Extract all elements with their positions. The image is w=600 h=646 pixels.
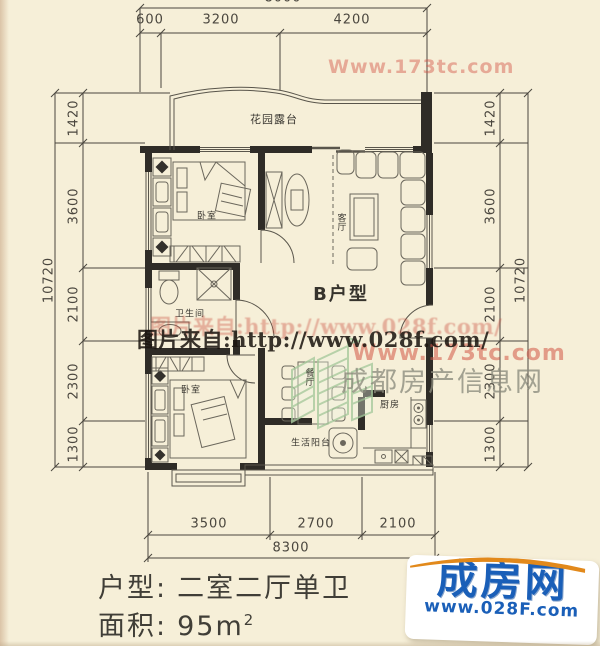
dim-right-1420: 1420 [484,99,499,136]
room-label-bedroom-upper: 卧室 [197,209,217,222]
walls [140,92,433,470]
area-sup: 2 [244,611,255,629]
closet-upper-bedroom [153,158,171,256]
door-bedroom-upper [261,230,294,263]
washer [329,428,357,458]
wardrobe-hatch-upper [170,246,240,262]
floorplan-scan: 8000 600 3200 4200 10720 1420 3600 2100 … [0,0,600,646]
area-value: 95m [177,611,244,642]
wardrobe-hatch-lower [152,357,204,371]
unit-type-line: 户型:二室二厅单卫 [98,566,351,605]
dim-top-total: 8000 [264,0,301,6]
dim-left-2100: 2100 [67,285,82,322]
dim-top-4200: 4200 [333,13,370,28]
closet-lower-bedroom [152,368,168,462]
dim-bottom-2100: 2100 [379,517,416,532]
tv-unit [266,172,309,228]
dim-right-1300: 1300 [484,425,499,462]
dim-top-3200: 3200 [202,13,239,28]
site-logo-url: www.028F.com [424,596,580,621]
watermark-site-top: Www.173tc.com [328,56,514,78]
type-value: 二室二厅单卫 [177,573,351,604]
dim-left-total: 10720 [42,257,57,303]
dim-top-600: 600 [136,13,164,28]
room-label-kitchen: 厨房 [380,398,400,411]
type-label: 户型: [98,573,167,604]
area-label: 面积: [98,611,167,642]
site-logo: 成房网 www.028F.com [405,555,600,646]
dim-right-total: 10720 [514,257,529,303]
room-label-living-room: 客厅 [335,213,348,231]
door-bedroom-lower [227,355,255,383]
dim-bottom-3500: 3500 [190,517,227,532]
dim-left-1300: 1300 [67,425,82,462]
dim-bottom-2700: 2700 [297,517,334,532]
dimension-lines [51,4,532,568]
room-label-garden-terrace: 花园露台 [250,111,298,127]
watermark-source-line: 图片来自:http://www.028f.com/ [137,324,489,354]
dim-bottom-total: 8300 [272,541,309,556]
unit-type-label: B户型 [313,280,369,306]
dim-right-3600: 3600 [484,187,499,224]
room-label-balcony: 生活阳台 [291,436,331,449]
room-label-bedroom-lower: 卧室 [181,383,201,396]
dim-left-1420: 1420 [67,99,82,136]
dim-left-2300: 2300 [67,362,82,399]
dim-left-3600: 3600 [67,187,82,224]
room-label-dining: 餐厅 [303,368,316,386]
area-line: 面积:95m2 [98,604,255,643]
